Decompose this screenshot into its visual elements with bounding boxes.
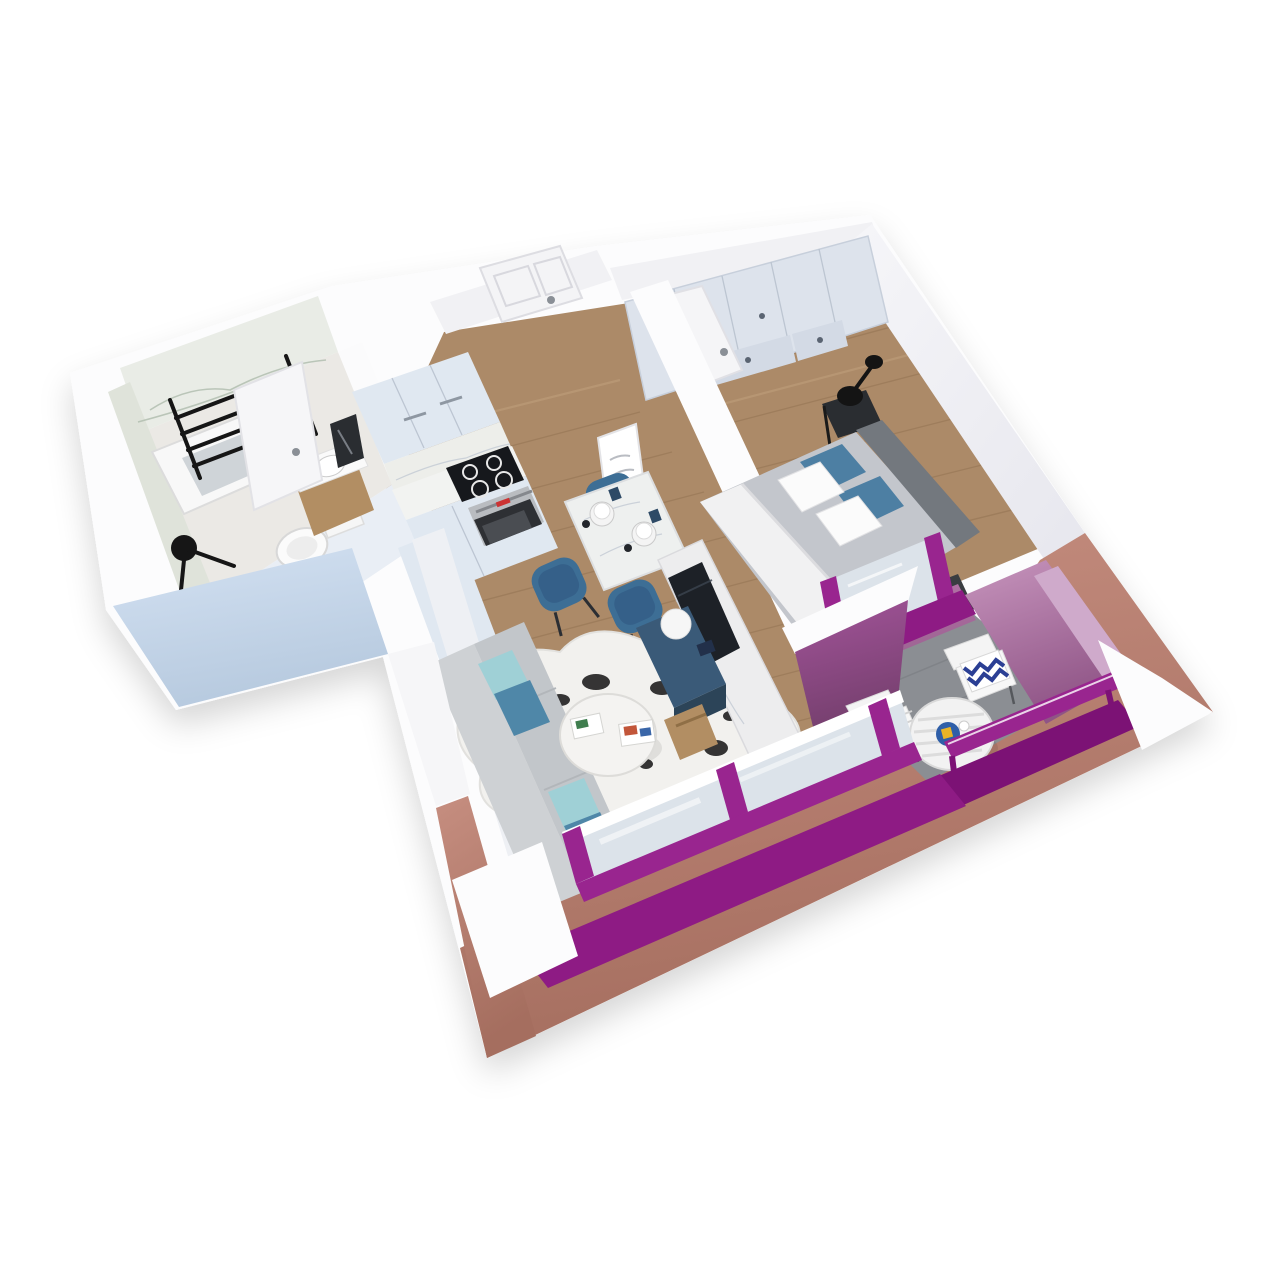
apartment-3d-floorplan <box>0 0 1280 1280</box>
sphere-lamp-icon <box>661 609 691 639</box>
door-handle-icon <box>292 448 300 456</box>
black-lamp-icon <box>837 386 863 406</box>
floorplan-render-stage <box>0 0 1280 1280</box>
door-handle-icon <box>720 348 728 356</box>
door-handle-icon <box>547 296 555 304</box>
